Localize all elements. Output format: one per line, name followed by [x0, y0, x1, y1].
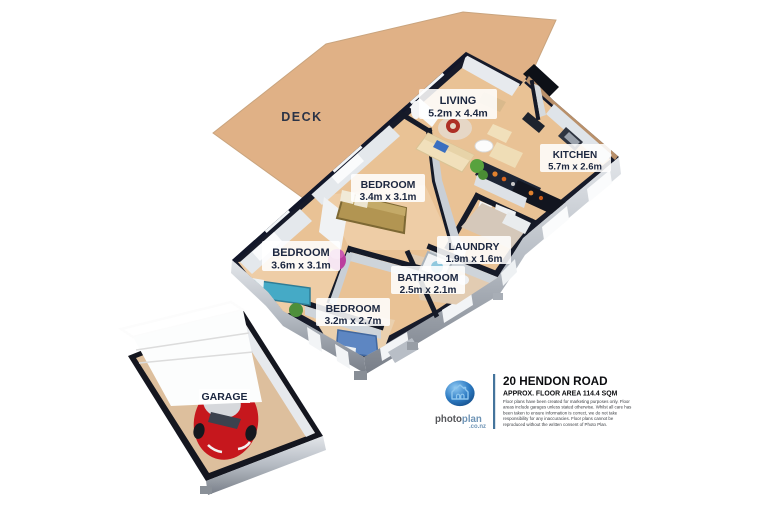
- svg-text:2.5m x 2.1m: 2.5m x 2.1m: [400, 285, 457, 296]
- svg-text:1.9m x 1.6m: 1.9m x 1.6m: [446, 254, 503, 265]
- svg-text:DECK: DECK: [281, 110, 322, 124]
- svg-text:BATHROOM: BATHROOM: [397, 272, 458, 284]
- svg-text:5.2m x 4.4m: 5.2m x 4.4m: [428, 108, 488, 120]
- svg-text:5.7m x 2.6m: 5.7m x 2.6m: [548, 162, 602, 173]
- svg-text:BEDROOM: BEDROOM: [272, 247, 329, 259]
- svg-text:been taken to ensure informati: been taken to ensure information is corr…: [503, 410, 618, 415]
- svg-text:LAUNDRY: LAUNDRY: [449, 241, 500, 253]
- svg-text:responsibility for any inaccur: responsibility for any inaccuracies. Flo…: [503, 416, 614, 421]
- svg-text:KITCHEN: KITCHEN: [553, 150, 597, 161]
- svg-text:areas include garages unless s: areas include garages unless stated othe…: [503, 405, 632, 410]
- svg-text:3.4m x 3.1m: 3.4m x 3.1m: [360, 192, 417, 203]
- svg-text:LIVING: LIVING: [440, 95, 477, 107]
- svg-text:20 HENDON ROAD: 20 HENDON ROAD: [503, 375, 608, 388]
- svg-text:.co.nz: .co.nz: [469, 424, 486, 430]
- svg-text:APPROX. FLOOR AREA 114.4 SQM: APPROX. FLOOR AREA 114.4 SQM: [503, 391, 618, 398]
- svg-text:3.2m x 2.7m: 3.2m x 2.7m: [325, 316, 382, 327]
- svg-text:Floor plans have been created: Floor plans have been created for market…: [503, 399, 630, 404]
- svg-text:BEDROOM: BEDROOM: [361, 179, 416, 191]
- svg-text:3.6m x 3.1m: 3.6m x 3.1m: [271, 260, 331, 272]
- svg-text:BEDROOM: BEDROOM: [326, 303, 381, 315]
- svg-text:GARAGE: GARAGE: [201, 391, 247, 403]
- svg-text:reproduced without the written: reproduced without the written consent o…: [503, 422, 607, 427]
